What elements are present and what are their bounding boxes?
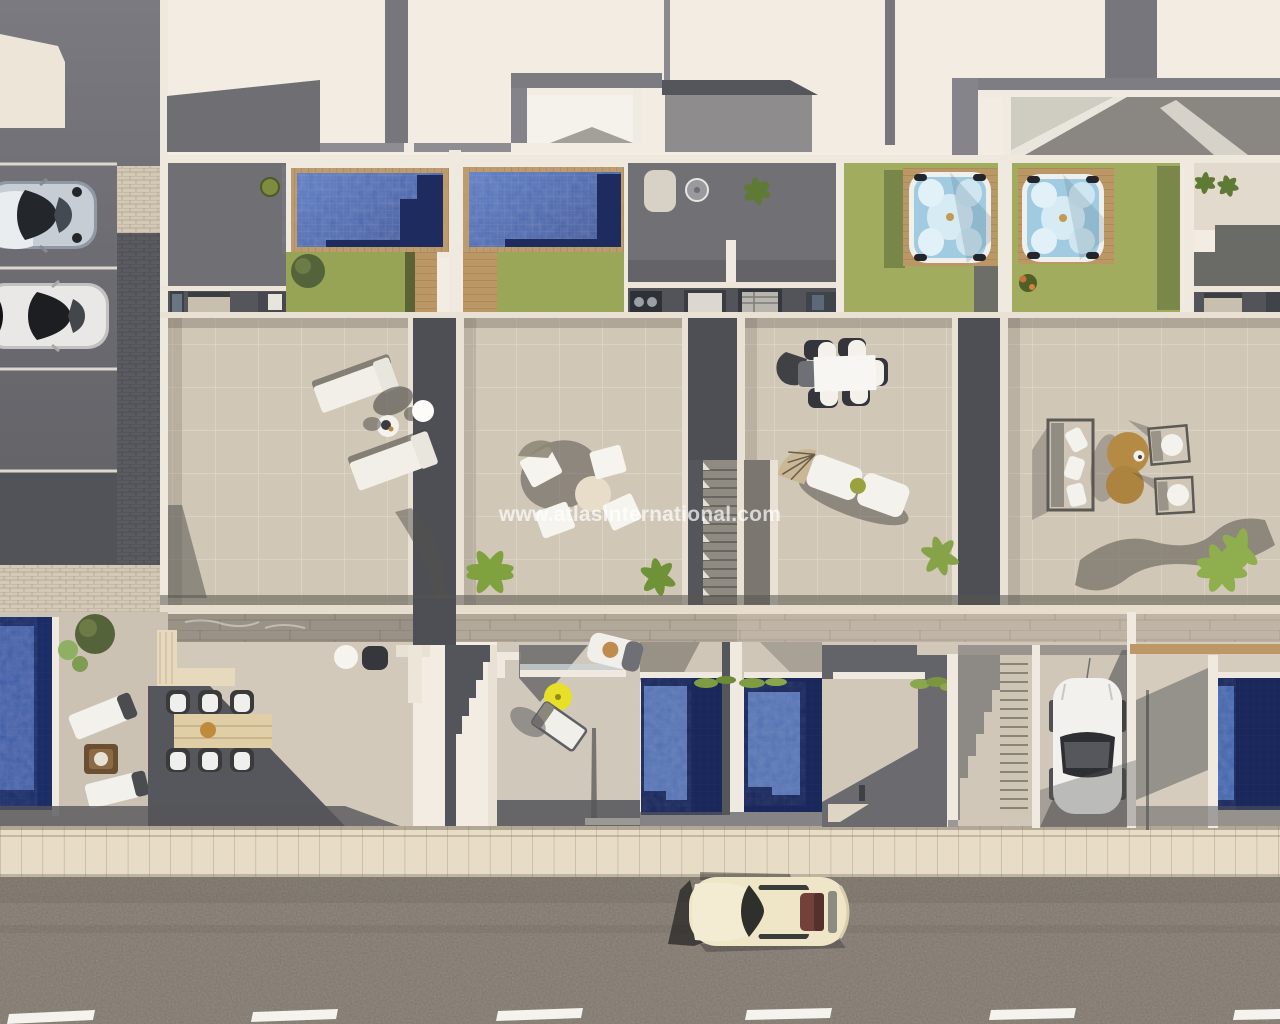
svg-text:www.atlasinternational.com: www.atlasinternational.com	[498, 503, 781, 526]
